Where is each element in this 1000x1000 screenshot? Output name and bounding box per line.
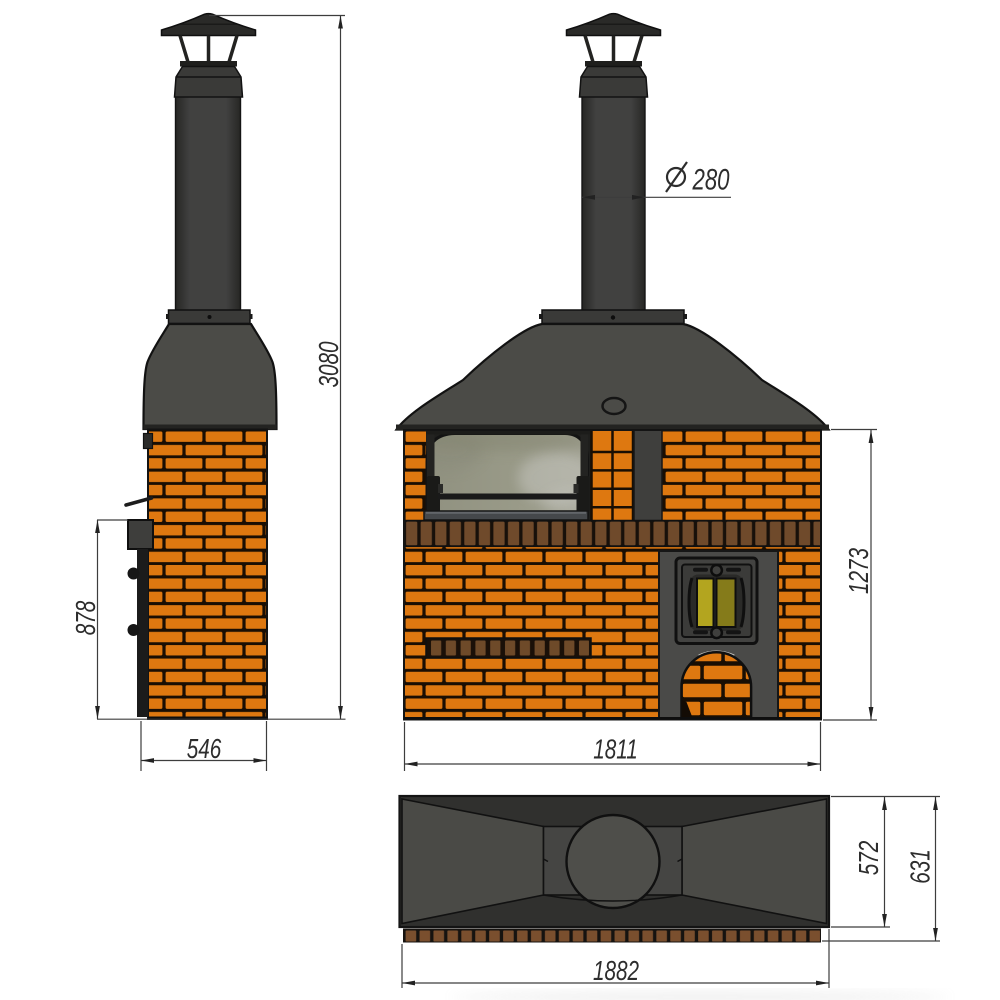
svg-text:3080: 3080 <box>314 341 345 387</box>
svg-text:631: 631 <box>906 849 937 884</box>
svg-text:1811: 1811 <box>593 735 638 766</box>
svg-text:1273: 1273 <box>844 548 875 594</box>
svg-text:1882: 1882 <box>593 956 639 987</box>
svg-text:546: 546 <box>187 734 222 765</box>
svg-text:280: 280 <box>692 162 730 196</box>
svg-text:572: 572 <box>854 840 885 875</box>
svg-text:878: 878 <box>71 600 102 635</box>
